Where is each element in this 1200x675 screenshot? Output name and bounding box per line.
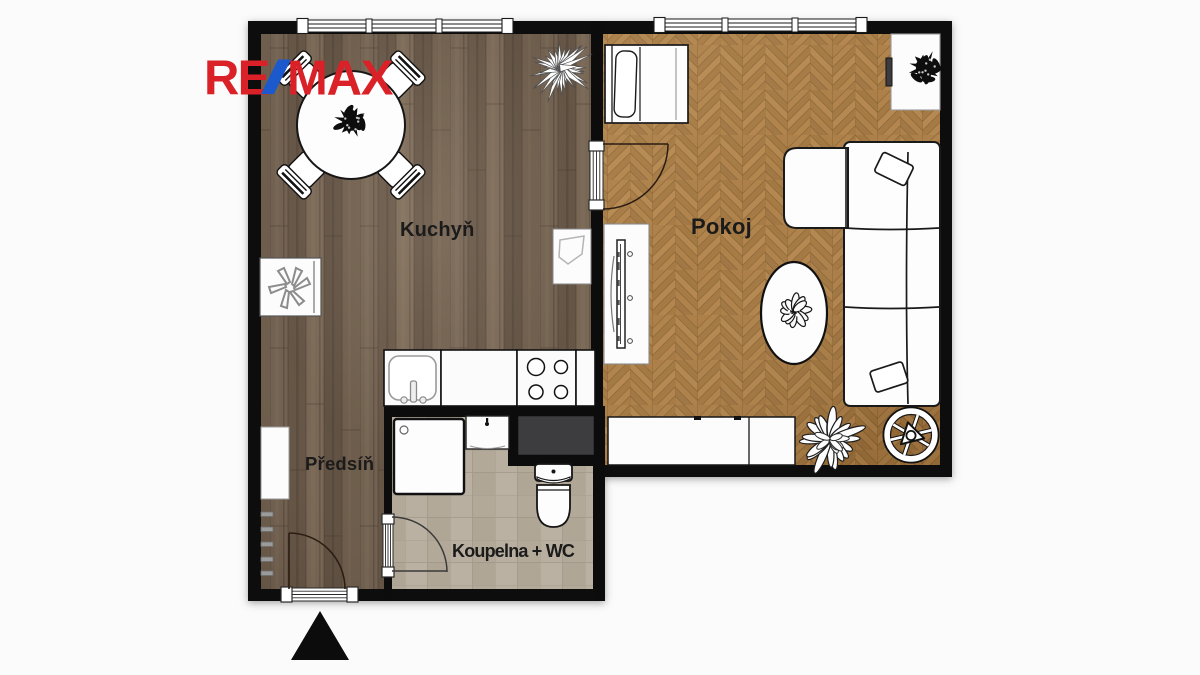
svg-text:RE: RE	[204, 52, 269, 106]
svg-text:Kuchyň: Kuchyň	[400, 219, 475, 241]
svg-text:MAX: MAX	[287, 52, 394, 106]
svg-text:Pokoj: Pokoj	[691, 214, 752, 239]
svg-text:Předsíň: Předsíň	[305, 453, 374, 474]
svg-text:Koupelna + WC: Koupelna + WC	[452, 541, 575, 561]
